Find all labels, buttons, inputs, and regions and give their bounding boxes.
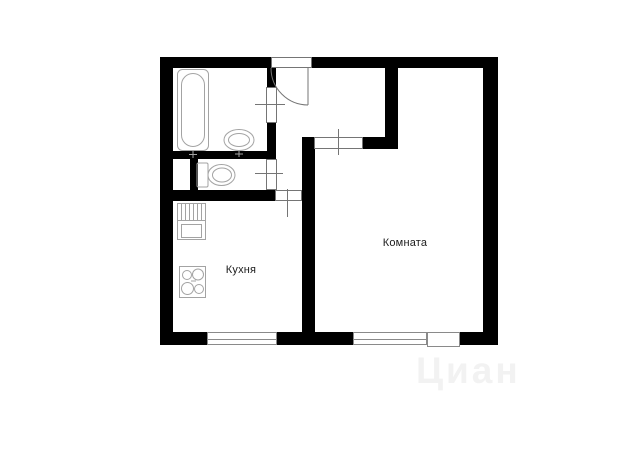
kitchen-door-frame bbox=[275, 190, 302, 201]
window-sash-line bbox=[208, 339, 276, 340]
kitchen-door-leaf bbox=[287, 189, 288, 217]
kitchen-window bbox=[207, 332, 277, 345]
wall-bottom-left-segment bbox=[160, 332, 207, 345]
toilet-door-frame bbox=[266, 159, 277, 190]
window-sash-line bbox=[354, 339, 426, 340]
wall-bottom-center-segment bbox=[277, 332, 353, 345]
room-door-leaf bbox=[338, 129, 339, 155]
kitchen-label: Кухня bbox=[203, 264, 279, 276]
wall-top-right-segment bbox=[312, 57, 498, 68]
balcony-door bbox=[427, 332, 460, 347]
wall-right bbox=[483, 57, 498, 345]
wall-kitchen-north bbox=[173, 190, 275, 201]
wash-basin-icon bbox=[221, 128, 257, 159]
wall-kitchen-room-divider bbox=[302, 137, 315, 332]
wall-hallway-room-vertical bbox=[385, 68, 398, 149]
living-room-label: Комната bbox=[363, 237, 447, 249]
kitchen-sink-icon bbox=[177, 203, 207, 241]
watermark: Циан bbox=[416, 349, 596, 393]
wall-left bbox=[160, 57, 173, 345]
floor-plan: Кухня Комната Циан bbox=[0, 0, 640, 453]
wall-bottom-right-segment bbox=[460, 332, 498, 345]
bathtub-icon bbox=[176, 68, 210, 160]
entrance-door-swing-icon bbox=[260, 57, 320, 117]
toilet-icon bbox=[196, 160, 240, 190]
room-window bbox=[353, 332, 427, 345]
wall-top-left-segment bbox=[160, 57, 271, 68]
toilet-door-leaf bbox=[255, 173, 283, 174]
